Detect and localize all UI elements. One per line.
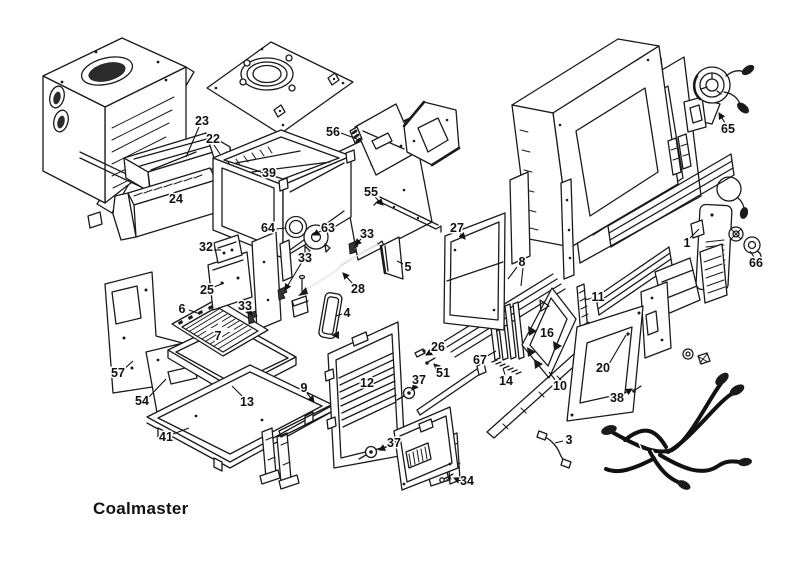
part-label-63: 63 xyxy=(321,221,335,235)
part-label-66: 66 xyxy=(749,256,763,270)
part-label-33a: 33 xyxy=(360,227,374,241)
support-legs-left xyxy=(260,428,299,489)
part-label-37b: 37 xyxy=(387,436,401,450)
part-label-6: 6 xyxy=(179,302,186,316)
part-label-22: 22 xyxy=(206,132,220,146)
exploded-parts-diagram-page: 23 22 24 39 56 55 64 63 33 32 33 25 28 5… xyxy=(0,0,800,570)
part-label-51: 51 xyxy=(436,366,450,380)
part-label-11: 11 xyxy=(591,290,604,304)
part-label-16: 16 xyxy=(540,326,554,340)
leader-8b xyxy=(521,268,523,286)
damper-box-assembly xyxy=(641,244,727,364)
part-label-3: 3 xyxy=(566,433,573,447)
part-label-5: 5 xyxy=(405,260,412,274)
part-label-1: 1 xyxy=(684,236,691,250)
part-label-28: 28 xyxy=(351,282,365,296)
part-label-32: 32 xyxy=(199,240,213,254)
gasket-14 xyxy=(492,360,521,374)
part-label-41: 41 xyxy=(159,430,173,444)
part-label-39: 39 xyxy=(262,166,276,180)
part-label-10: 10 xyxy=(553,379,567,393)
part-label-55: 55 xyxy=(364,185,378,199)
part-label-9: 9 xyxy=(301,381,308,395)
part-label-54: 54 xyxy=(135,394,149,408)
firebrick-block xyxy=(292,296,308,317)
part-label-4: 4 xyxy=(344,306,351,320)
part-label-13: 13 xyxy=(240,395,254,409)
part-label-25: 25 xyxy=(200,283,214,297)
part-label-12: 12 xyxy=(360,376,374,390)
firebox-support-panel xyxy=(252,232,292,330)
support-bar xyxy=(417,363,486,415)
part-label-8: 8 xyxy=(519,255,526,269)
leader-8a xyxy=(508,267,517,279)
bolt-28-area xyxy=(300,276,305,292)
part-label-20: 20 xyxy=(596,361,610,375)
blower-fan xyxy=(684,63,756,132)
part-label-64: 64 xyxy=(261,221,275,235)
screw-51 xyxy=(425,358,435,365)
part-label-27: 27 xyxy=(450,221,464,235)
pin-26 xyxy=(415,349,426,357)
part-label-33c: 33 xyxy=(238,299,252,313)
part-label-34: 34 xyxy=(460,474,474,488)
part-label-7: 7 xyxy=(215,329,222,343)
product-title: Coalmaster xyxy=(93,499,189,518)
leader-3 xyxy=(555,441,563,443)
part-label-26: 26 xyxy=(431,340,445,354)
part-label-38: 38 xyxy=(610,391,624,405)
part-label-23: 23 xyxy=(195,114,209,128)
part-label-33b: 33 xyxy=(298,251,312,265)
exploded-parts-diagram: 23 22 24 39 56 55 64 63 33 32 33 25 28 5… xyxy=(0,0,800,570)
part-label-14: 14 xyxy=(499,374,513,388)
part-label-56: 56 xyxy=(326,125,340,139)
part-label-24: 24 xyxy=(169,192,183,206)
top-plate xyxy=(207,42,353,134)
part-label-57: 57 xyxy=(111,366,125,380)
part-label-37a: 37 xyxy=(412,373,426,387)
part-label-65: 65 xyxy=(721,122,735,136)
thermostat-knobs xyxy=(729,227,761,257)
part-label-67: 67 xyxy=(473,353,487,367)
